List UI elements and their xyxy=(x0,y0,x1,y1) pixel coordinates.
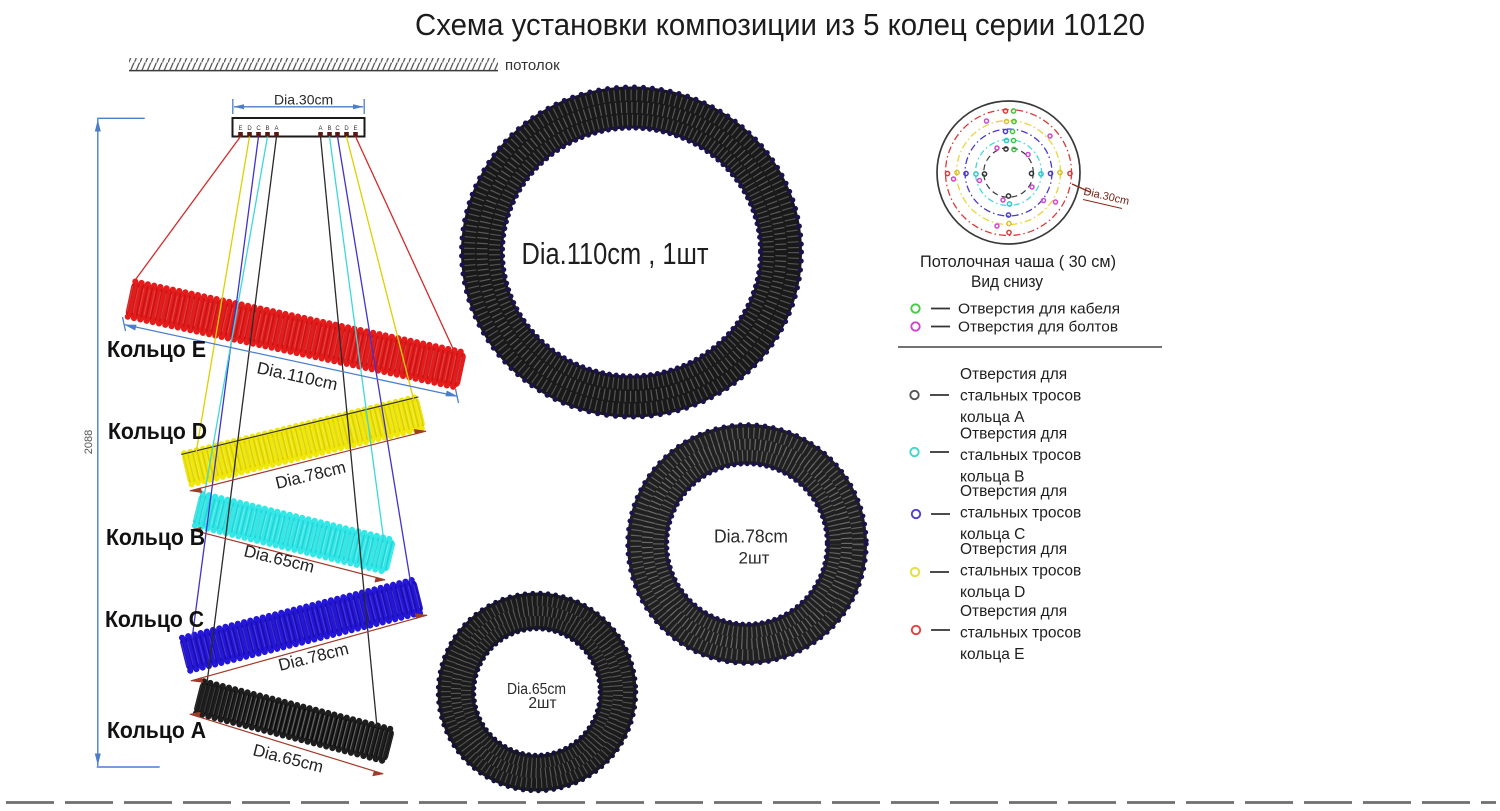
svg-text:2088: 2088 xyxy=(83,430,95,454)
svg-text:Отверстия для: Отверстия для xyxy=(960,483,1067,500)
svg-text:Кольцо B: Кольцо B xyxy=(106,524,205,550)
svg-text:B: B xyxy=(327,126,331,132)
svg-text:B: B xyxy=(265,126,269,132)
svg-text:C: C xyxy=(256,126,261,132)
svg-text:A: A xyxy=(274,126,278,132)
svg-text:2шт: 2шт xyxy=(739,549,770,568)
svg-text:стальных тросов: стальных тросов xyxy=(960,388,1081,405)
svg-text:кольца E: кольца E xyxy=(960,646,1025,663)
svg-text:стальных тросов: стальных тросов xyxy=(960,447,1081,464)
svg-text:Кольцо D: Кольцо D xyxy=(108,418,207,444)
svg-text:D: D xyxy=(247,126,252,132)
svg-text:Отверстия для: Отверстия для xyxy=(960,426,1067,443)
svg-text:Отверстия для: Отверстия для xyxy=(960,603,1067,620)
svg-text:2шт: 2шт xyxy=(528,695,556,712)
svg-text:кольца D: кольца D xyxy=(960,584,1025,601)
svg-text:C: C xyxy=(335,126,340,132)
svg-text:кольца A: кольца A xyxy=(960,409,1025,426)
svg-text:D: D xyxy=(344,126,349,132)
svg-text:потолок: потолок xyxy=(505,57,560,74)
svg-text:стальных тросов: стальных тросов xyxy=(960,625,1081,642)
svg-text:стальных тросов: стальных тросов xyxy=(960,505,1081,522)
svg-text:стальных тросов: стальных тросов xyxy=(960,563,1081,580)
svg-text:Dia.78cm: Dia.78cm xyxy=(714,527,788,547)
svg-text:Отверстия для: Отверстия для xyxy=(960,366,1067,383)
svg-text:Кольцо C: Кольцо C xyxy=(105,606,204,632)
svg-text:E: E xyxy=(238,126,242,132)
svg-text:Dia.30cm: Dia.30cm xyxy=(274,92,333,108)
svg-text:Кольцо A: Кольцо A xyxy=(107,717,206,743)
svg-text:Отверстия для кабеля: Отверстия для кабеля xyxy=(958,301,1120,318)
svg-text:E: E xyxy=(353,126,357,132)
svg-text:Dia.110cm , 1шт: Dia.110cm , 1шт xyxy=(522,236,709,271)
svg-text:Вид снизу: Вид снизу xyxy=(971,272,1043,291)
svg-text:A: A xyxy=(318,126,322,132)
svg-text:Отверстия для болтов: Отверстия для болтов xyxy=(958,319,1118,336)
svg-text:Потолочная чаша ( 30 см): Потолочная чаша ( 30 см) xyxy=(920,252,1116,271)
svg-text:Схема установки композиции из: Схема установки композиции из 5 колец се… xyxy=(415,7,1145,42)
svg-text:Отверстия для: Отверстия для xyxy=(960,541,1067,558)
svg-text:Кольцо E: Кольцо E xyxy=(107,336,206,362)
